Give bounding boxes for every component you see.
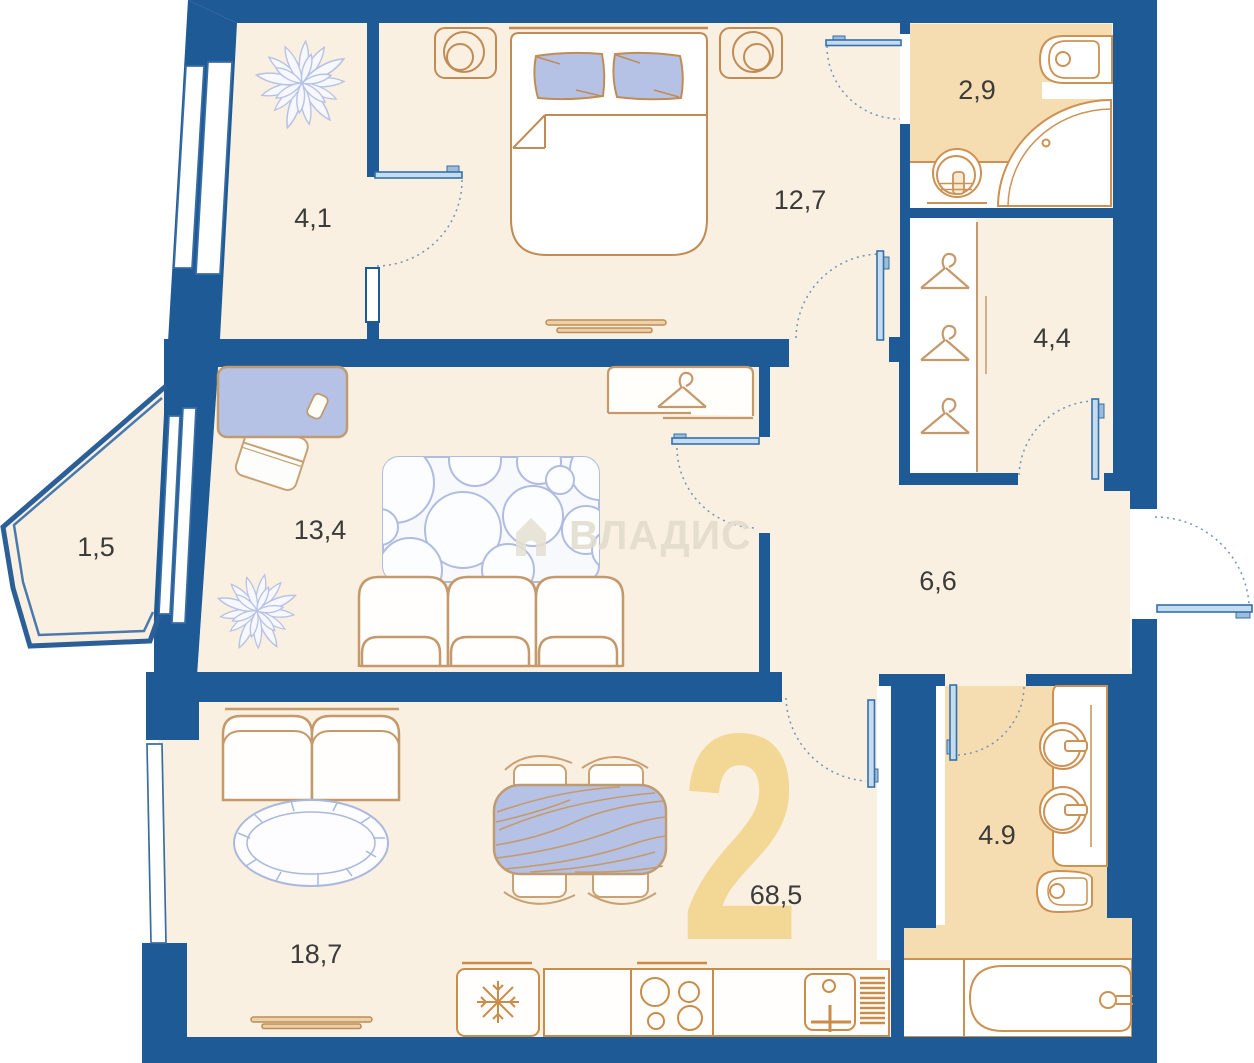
- svg-text:13,4: 13,4: [294, 515, 347, 545]
- svg-text:6,6: 6,6: [919, 566, 957, 596]
- svg-text:4,4: 4,4: [1033, 323, 1071, 353]
- svg-text:68,5: 68,5: [750, 880, 803, 910]
- svg-text:4,1: 4,1: [294, 203, 332, 233]
- svg-text:4.9: 4.9: [978, 820, 1016, 850]
- svg-text:1,5: 1,5: [77, 532, 115, 562]
- svg-text:2,9: 2,9: [958, 75, 996, 105]
- svg-text:18,7: 18,7: [290, 939, 343, 969]
- svg-text:12,7: 12,7: [774, 185, 827, 215]
- svg-text:ВЛАДИС: ВЛАДИС: [569, 512, 752, 558]
- svg-text:2: 2: [680, 672, 800, 1002]
